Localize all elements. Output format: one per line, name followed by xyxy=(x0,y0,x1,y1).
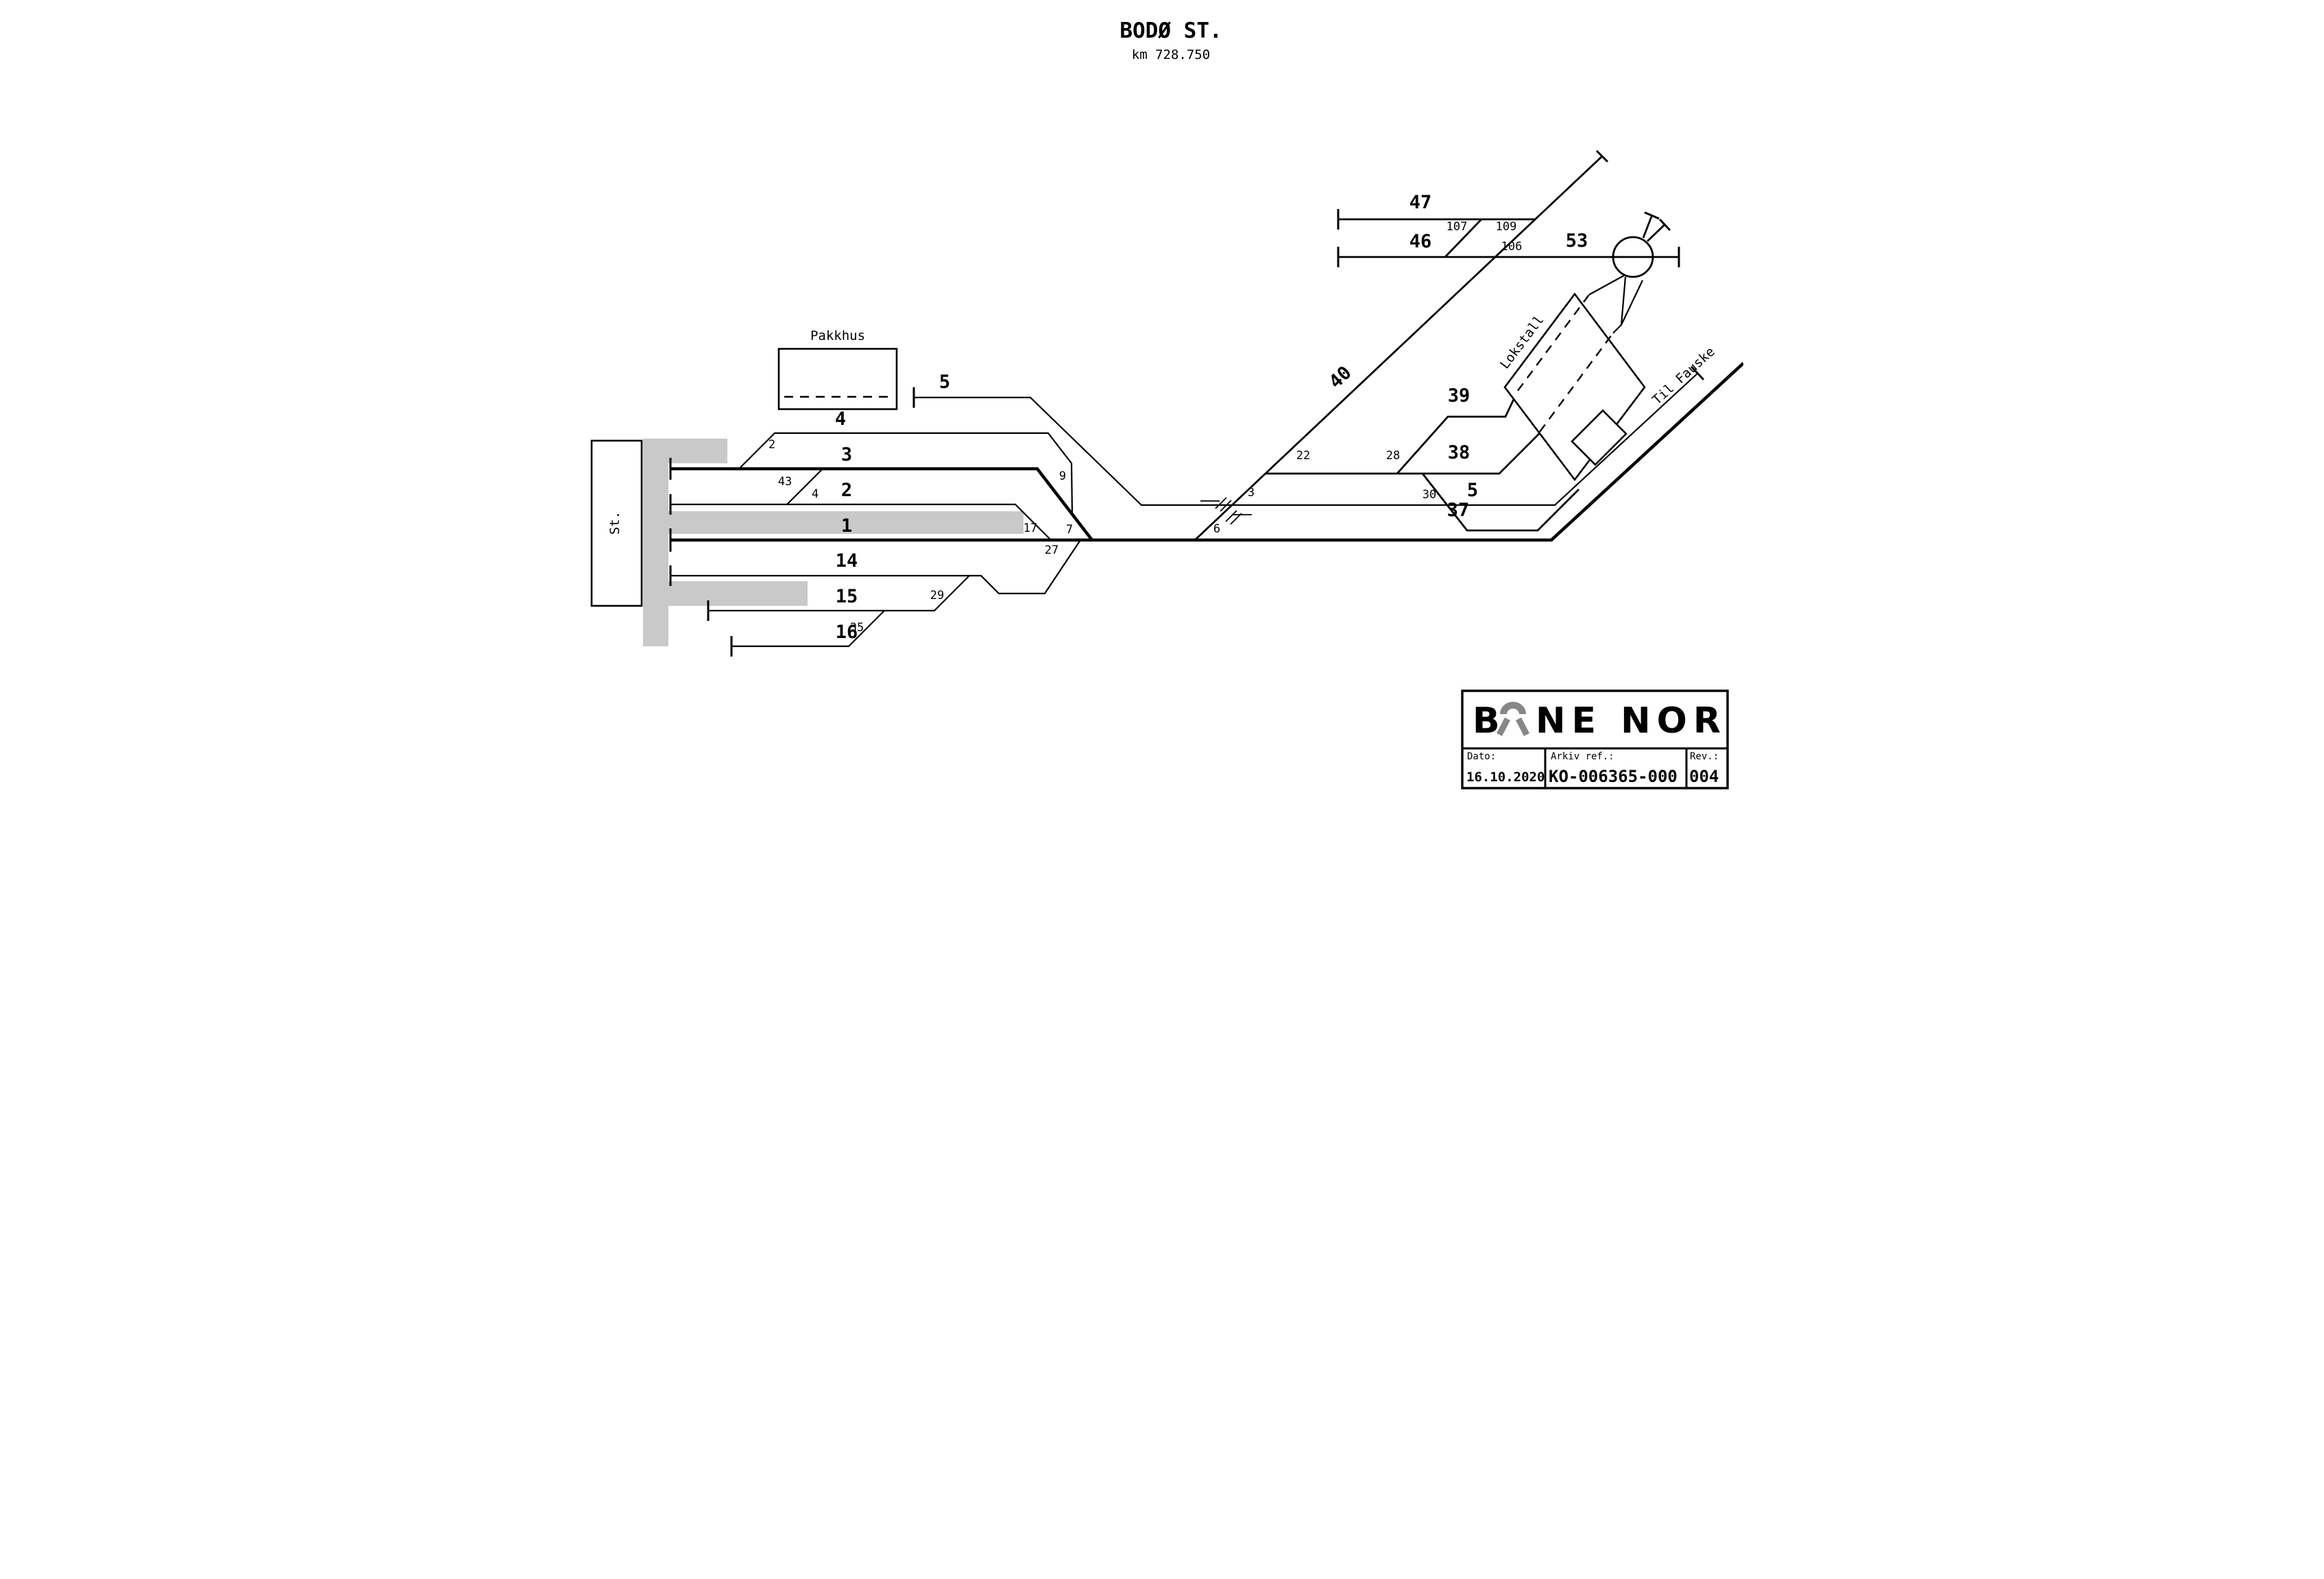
switch-3-label: 3 xyxy=(1247,486,1254,500)
switch-17-label: 17 xyxy=(1023,522,1037,535)
switch-109-label: 109 xyxy=(1495,220,1516,234)
switch-30-label: 30 xyxy=(1422,488,1436,502)
page-title: BODØ ST. xyxy=(1119,19,1222,43)
lokstall-building xyxy=(1505,294,1645,480)
track-3-label: 3 xyxy=(840,444,851,465)
track-4-label: 4 xyxy=(834,408,845,430)
logo-letter-b: B xyxy=(1473,700,1500,742)
logo-letters-ne-nor: NE NOR xyxy=(1536,700,1727,742)
track-38-label: 38 xyxy=(1447,442,1470,463)
title-block: B NE NOR Dato: 16.10.2020 Arkiv ref.: KO… xyxy=(1462,691,1728,788)
turntable-link-a xyxy=(1589,276,1624,295)
pakkhus-label: Pakkhus xyxy=(810,328,864,343)
platform-track3-north xyxy=(643,439,727,463)
pakkhus-building xyxy=(779,349,897,409)
switch-number-labels: 2 43 4 17 9 7 27 29 35 6 3 22 28 30 107 … xyxy=(768,220,1521,635)
track-15-label: 15 xyxy=(835,586,858,607)
switch-2-label: 2 xyxy=(768,438,775,452)
platform-vertical xyxy=(643,439,668,646)
track-40-label: 40 xyxy=(1324,362,1355,393)
turntable-link-b xyxy=(1613,277,1625,333)
rev-value: 004 xyxy=(1689,767,1719,786)
switch-29-label: 29 xyxy=(930,589,943,602)
joint-mark-slashes-lower xyxy=(1226,511,1242,524)
switch-43-label: 43 xyxy=(777,475,791,489)
track-53-label: 53 xyxy=(1565,230,1588,252)
dato-value: 16.10.2020 xyxy=(1466,770,1545,785)
track-diagram-page: BODØ ST. km 728.750 St. Pakkhus xyxy=(581,0,1743,789)
track-14-label: 14 xyxy=(835,550,858,572)
track-37-line xyxy=(1423,474,1579,530)
switch-35-label: 35 xyxy=(849,621,863,635)
rev-label: Rev.: xyxy=(1690,751,1719,762)
switch-27-label: 27 xyxy=(1044,543,1058,557)
switch-28-label: 28 xyxy=(1385,449,1399,463)
switch-4-label: 4 xyxy=(811,487,818,501)
switch-106-label: 106 xyxy=(1501,240,1522,254)
turntable-stub-1 xyxy=(1643,217,1651,238)
switch-107-label: 107 xyxy=(1446,220,1467,234)
switch-7-label: 7 xyxy=(1065,523,1072,537)
arkiv-ref-value: KO-006365-000 xyxy=(1549,767,1678,786)
track-37-label: 37 xyxy=(1447,500,1469,521)
turntable-stub-2 xyxy=(1647,225,1665,241)
lokstall-area xyxy=(1505,212,1670,480)
track-2-label: 2 xyxy=(840,480,851,501)
arkiv-ref-label: Arkiv ref.: xyxy=(1551,751,1614,762)
track-46-label: 46 xyxy=(1409,231,1431,252)
switch-6-label: 6 xyxy=(1213,522,1220,536)
station-building-label: St. xyxy=(607,511,622,535)
dato-label: Dato: xyxy=(1467,751,1496,762)
track-5-west-label: 5 xyxy=(939,371,949,393)
platform-track15 xyxy=(666,581,808,606)
switch-9-label: 9 xyxy=(1058,469,1065,483)
track-5-east-label: 5 xyxy=(1466,480,1477,501)
track-1-label: 1 xyxy=(840,515,851,537)
station-schematic-bodo: BODØ ST. km 728.750 St. Pakkhus xyxy=(581,0,1743,789)
page-km-position: km 728.750 xyxy=(1131,47,1209,62)
track-39-label: 39 xyxy=(1447,385,1470,406)
switch-22-label: 22 xyxy=(1296,449,1309,463)
track-47-label: 47 xyxy=(1409,192,1431,213)
